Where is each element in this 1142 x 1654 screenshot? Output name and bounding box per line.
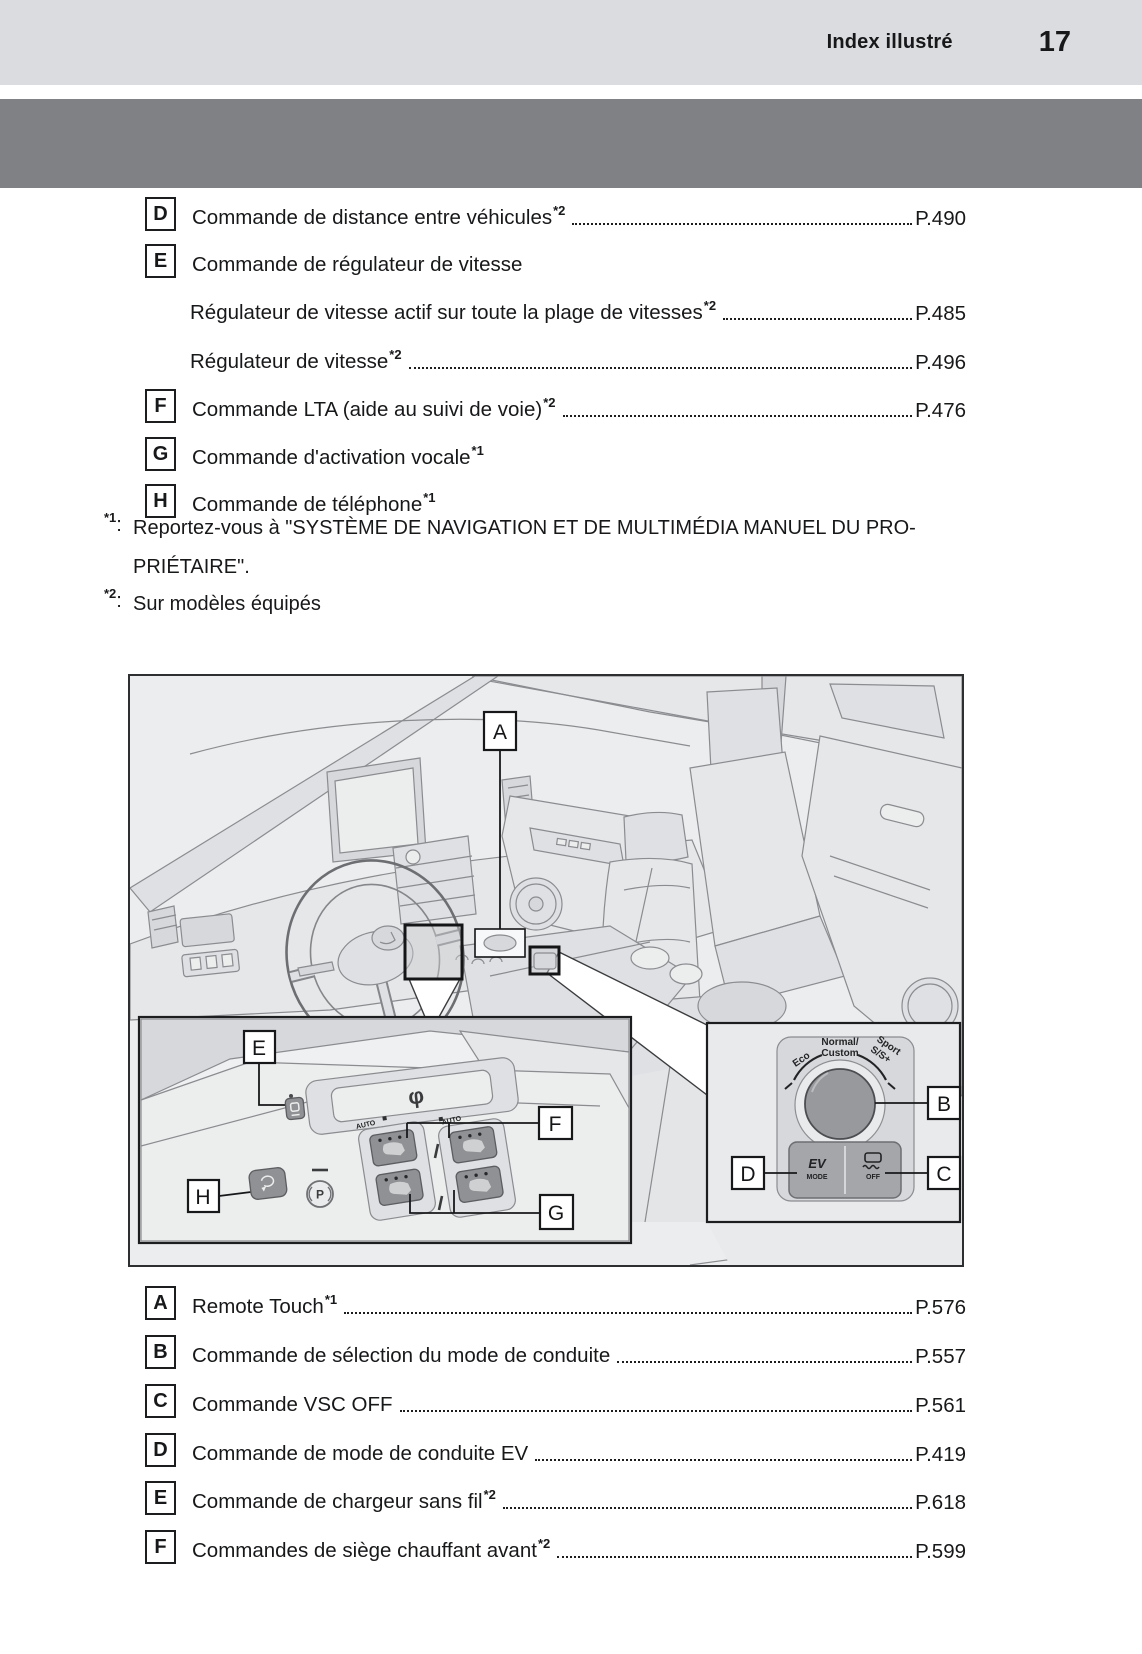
list-item: D Commande de distance entre véhicules*2… <box>145 196 966 231</box>
svg-text:B: B <box>937 1093 951 1116</box>
footnote-marker: *1: <box>103 514 122 537</box>
callout-a: A <box>484 712 516 750</box>
callout-b: B <box>928 1087 960 1119</box>
dotted-leader <box>572 223 912 225</box>
page-header-band: Index illustré 17 <box>0 0 1142 85</box>
item-label: Commande de téléphone <box>192 493 422 516</box>
svg-text:A: A <box>493 721 507 744</box>
page-ref: P.490 <box>915 207 966 231</box>
item-label: Commande d'activation vocale <box>192 446 471 469</box>
item-label: Commande LTA (aide au suivi de voie) <box>192 398 542 421</box>
callout-c: C <box>928 1157 960 1189</box>
item-label: Commandes de siège chauffant avant <box>192 1539 537 1562</box>
list-item: H Commande de téléphone*1 <box>145 483 966 518</box>
svg-text:G: G <box>548 1202 564 1225</box>
svg-text:OFF: OFF <box>866 1174 881 1181</box>
page-ref: P.419 <box>915 1443 966 1467</box>
page-number: 17 <box>1039 26 1071 59</box>
svg-text:H: H <box>195 1186 210 1209</box>
illustration-svg: A φ E <box>130 676 962 1265</box>
list-subitem: Régulateur de vitesse*2 P.496 <box>190 340 966 375</box>
list-item: F Commande LTA (aide au suivi de voie)*2… <box>145 388 966 423</box>
charger-switch <box>285 1097 305 1120</box>
dotted-leader <box>617 1361 912 1363</box>
list-item: B Commande de sélection du mode de condu… <box>145 1334 966 1369</box>
footnote-ref: *2 <box>484 1487 496 1502</box>
list-item: E Commande de régulateur de vitesse <box>145 243 966 278</box>
item-label: Commande de sélection du mode de conduit… <box>192 1344 610 1367</box>
console-inset: φ E H <box>139 1017 631 1243</box>
footnote-ref: *2 <box>704 298 716 313</box>
section-title: Index illustré <box>827 31 953 54</box>
list-item: C Commande VSC OFF P.561 <box>145 1383 966 1418</box>
page-ref: P.599 <box>915 1540 966 1564</box>
item-label: Commande de chargeur sans fil <box>192 1490 483 1513</box>
dotted-leader <box>409 367 912 369</box>
console-switch-h <box>248 1167 287 1200</box>
list-item: E Commande de chargeur sans fil*2 P.618 <box>145 1480 966 1515</box>
svg-text:C: C <box>936 1163 951 1186</box>
callout-h: H <box>188 1180 219 1212</box>
qi-wireless-icon: φ <box>407 1083 426 1110</box>
item-label: Commande de distance entre véhicules <box>192 206 552 229</box>
footnote-ref: *2 <box>389 347 401 362</box>
dotted-leader <box>400 1410 913 1412</box>
dotted-leader <box>557 1556 912 1558</box>
footnote-ref: *2 <box>538 1536 550 1551</box>
page-ref: P.561 <box>915 1394 966 1418</box>
car-interior-illustration: A φ E <box>128 674 964 1267</box>
item-letter: F <box>154 395 166 418</box>
svg-text:F: F <box>549 1113 562 1136</box>
svg-text:D: D <box>740 1163 755 1186</box>
item-label: Commande de mode de conduite EV <box>192 1442 528 1465</box>
item-label: Commande VSC OFF <box>192 1393 393 1416</box>
footnote-text: Sur modèles équipés <box>133 593 321 616</box>
item-letter-box: B <box>145 1335 176 1369</box>
svg-text:MODE: MODE <box>807 1174 828 1181</box>
footnote-text: PRIÉTAIRE". <box>133 556 250 579</box>
page-ref: P.576 <box>915 1296 966 1320</box>
dotted-leader <box>723 318 912 320</box>
item-letter-box: C <box>145 1384 176 1418</box>
item-letter-box: H <box>145 484 176 518</box>
list-item: D Commande de mode de conduite EV P.419 <box>145 1432 966 1467</box>
callout-f: F <box>539 1107 572 1139</box>
chapter-divider-band <box>0 99 1142 188</box>
item-letter: F <box>154 1536 166 1559</box>
ev-mode-button: EV MODE <box>807 1156 828 1181</box>
footnote-ref: *1 <box>472 443 484 458</box>
dotted-leader <box>563 415 913 417</box>
item-letter: E <box>154 1487 167 1510</box>
item-letter: H <box>153 490 167 513</box>
normal-label: Normal/ <box>821 1037 858 1048</box>
item-letter-box: E <box>145 1481 176 1515</box>
dotted-leader <box>344 1312 912 1314</box>
item-letter-box: F <box>145 389 176 423</box>
item-letter-box: E <box>145 244 176 278</box>
svg-text:P: P <box>316 1188 324 1202</box>
list-subitem: Régulateur de vitesse actif sur toute la… <box>190 291 966 326</box>
callout-e: E <box>244 1031 275 1063</box>
list-item: G Commande d'activation vocale*1 <box>145 436 966 471</box>
custom-label: Custom <box>821 1048 858 1059</box>
footnote-marker: *2: <box>103 590 122 613</box>
item-label: Commande de régulateur de vitesse <box>192 253 522 276</box>
item-letter: C <box>153 1390 167 1413</box>
drive-mode-knob <box>805 1069 875 1139</box>
dotted-leader <box>535 1459 912 1461</box>
zoom-marker-console-left <box>405 925 462 979</box>
footnote-ref: *2 <box>553 203 565 218</box>
item-label: Régulateur de vitesse <box>190 350 388 373</box>
drive-mode-inset: Eco Normal/ Custom Sport S/S+ EV MODE <box>707 1023 960 1222</box>
svg-text:EV: EV <box>808 1156 827 1171</box>
page-ref: P.618 <box>915 1491 966 1515</box>
item-letter-box: A <box>145 1286 176 1320</box>
item-letter-box: F <box>145 1530 176 1564</box>
dotted-leader <box>503 1507 912 1509</box>
list-item: F Commandes de siège chauffant avant*2 P… <box>145 1529 966 1564</box>
item-letter-box: D <box>145 1433 176 1467</box>
item-letter: B <box>153 1341 167 1364</box>
page-ref: P.485 <box>915 302 966 326</box>
footnote-ref: *1 <box>325 1292 337 1307</box>
item-letter: G <box>153 443 169 466</box>
callout-d: D <box>732 1157 764 1189</box>
footnote-ref: *1 <box>423 490 435 505</box>
lexus-logo <box>372 926 404 950</box>
footnote-text: Reportez-vous à "SYSTÈME DE NAVIGATION E… <box>133 517 916 540</box>
list-item: A Remote Touch*1 P.576 <box>145 1285 966 1320</box>
item-letter: A <box>153 1292 167 1315</box>
svg-text:E: E <box>252 1037 266 1060</box>
footnote-ref: *2 <box>543 395 555 410</box>
page-ref: P.476 <box>915 399 966 423</box>
manual-page: Index illustré 17 D Commande de distance… <box>0 0 1142 1654</box>
item-letter-box: D <box>145 197 176 231</box>
page-ref: P.496 <box>915 351 966 375</box>
item-letter: E <box>154 250 167 273</box>
item-label: Remote Touch <box>192 1295 324 1318</box>
item-letter: D <box>153 203 167 226</box>
callout-g: G <box>540 1195 573 1229</box>
page-ref: P.557 <box>915 1345 966 1369</box>
item-letter: D <box>153 1439 167 1462</box>
item-label: Régulateur de vitesse actif sur toute la… <box>190 301 703 324</box>
item-letter-box: G <box>145 437 176 471</box>
